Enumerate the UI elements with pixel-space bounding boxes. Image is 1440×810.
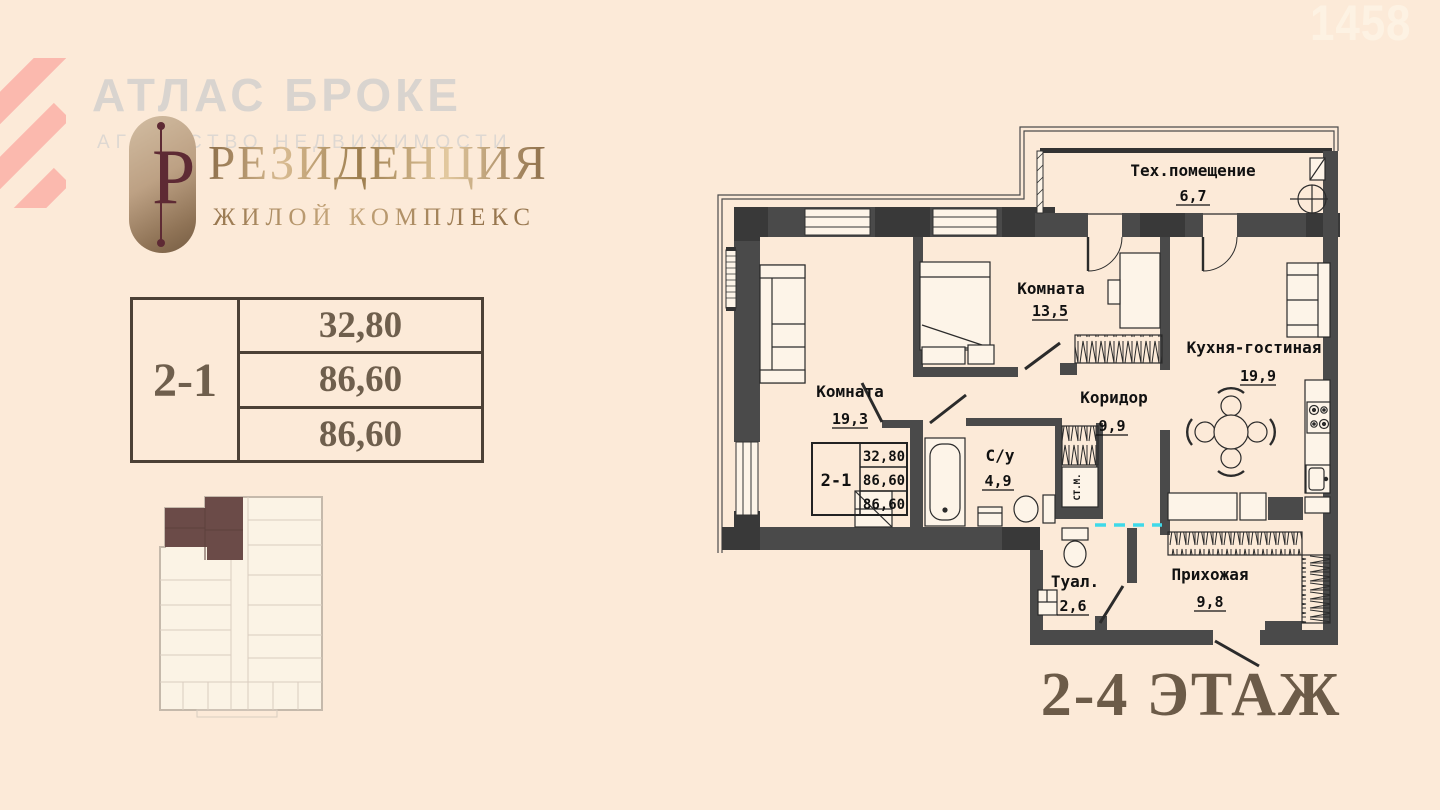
wardrobe-hall-right (1302, 555, 1330, 623)
room-wc-label: Туал. (1051, 572, 1099, 591)
shelf-laundry (1062, 426, 1098, 465)
unit-number: 2-1 (133, 300, 240, 460)
room-hall-area: 9,8 (1196, 593, 1223, 611)
wardrobe-bedroom (1075, 335, 1162, 363)
stamp-row-1: 32,80 (863, 449, 905, 465)
toilet-bath (1014, 495, 1055, 523)
wardrobe-hall-top (1168, 532, 1302, 555)
room-kitchen-area: 19,9 (1240, 367, 1276, 385)
brand-emblem: Р (129, 116, 196, 253)
door-tech-2 (1203, 213, 1237, 271)
agency-stripes-logo (0, 58, 66, 208)
brand-subtitle: ЖИЛОЙ КОМПЛЕКС (213, 204, 536, 232)
room-bedroom-area: 13,5 (1032, 302, 1068, 320)
vent-unit (1290, 185, 1328, 213)
room-wc-area: 2,6 (1059, 597, 1086, 615)
washer-label: СТ.М. (1073, 473, 1083, 500)
room-bedroom-label: Комната (1017, 279, 1084, 298)
dining-table (1187, 388, 1275, 476)
floor-plan: 2-1 32,80 86,60 86,60 Тех.помещение 6,7 … (710, 105, 1350, 677)
bed (920, 262, 994, 364)
room-corridor-area: 9,9 (1098, 417, 1125, 435)
window-top-1 (805, 209, 870, 235)
emblem-letter: Р (152, 138, 195, 216)
brand-name: РЕЗИДЕНЦИЯ (208, 134, 548, 191)
stamp-unit: 2-1 (821, 471, 852, 491)
flyer-page: { "watermark": { "agency_name": "АТЛАС Б… (0, 0, 1440, 810)
vanity-bath (978, 507, 1002, 526)
unit-total-area: 86,60 (240, 409, 481, 460)
window-top-2 (933, 209, 997, 235)
electric-panel (1310, 158, 1325, 180)
sofa-kitchen (1287, 263, 1330, 337)
room-kitchen-label: Кухня-гостиная (1187, 338, 1322, 357)
room-living-area: 19,3 (832, 410, 868, 428)
unit-summary-table: 2-1 32,80 86,60 86,60 (130, 297, 484, 463)
emblem-dot-top (157, 122, 165, 130)
unit-living-area: 32,80 (240, 300, 481, 354)
room-tech-area: 6,7 (1179, 187, 1206, 205)
door-tech-1 (1088, 213, 1122, 271)
stamp-row-3: 86,60 (863, 497, 905, 513)
door-bath-leaf (930, 395, 966, 423)
tech-partition-wall (1037, 151, 1043, 213)
floor-range-label: 2-4 ЭТАЖ (1030, 660, 1352, 731)
meter-cabinet (1038, 590, 1057, 615)
emblem-dot-bottom (157, 239, 165, 247)
facade-vent-grille (726, 247, 736, 311)
door-bedroom-leaf (1025, 343, 1060, 369)
window-left (736, 442, 758, 515)
kitchen-sink (1306, 465, 1330, 493)
photo-number: 1458 (1310, 0, 1411, 52)
room-bath-label: С/у (986, 446, 1015, 465)
door-wc-leaf (1100, 586, 1123, 623)
stripe-icon (0, 58, 62, 208)
agency-name-watermark: АТЛАС БРОКЕ (92, 68, 462, 122)
room-corridor-label: Коридор (1080, 388, 1147, 407)
room-hall-label: Прихожая (1171, 565, 1248, 584)
stamp-row-2: 86,60 (863, 473, 905, 489)
kitchen-counter (1168, 380, 1330, 520)
room-living-label: Комната (816, 382, 883, 401)
sofa-room-19 (760, 265, 805, 383)
stove (1307, 402, 1330, 433)
building-key-plan (153, 490, 325, 722)
room-bath-area: 4,9 (984, 472, 1011, 490)
bathtub (925, 438, 965, 526)
unit-area: 86,60 (240, 354, 481, 408)
desk (1108, 253, 1160, 328)
room-tech-label: Тех.помещение (1130, 161, 1255, 180)
toilet-wc (1062, 528, 1088, 567)
